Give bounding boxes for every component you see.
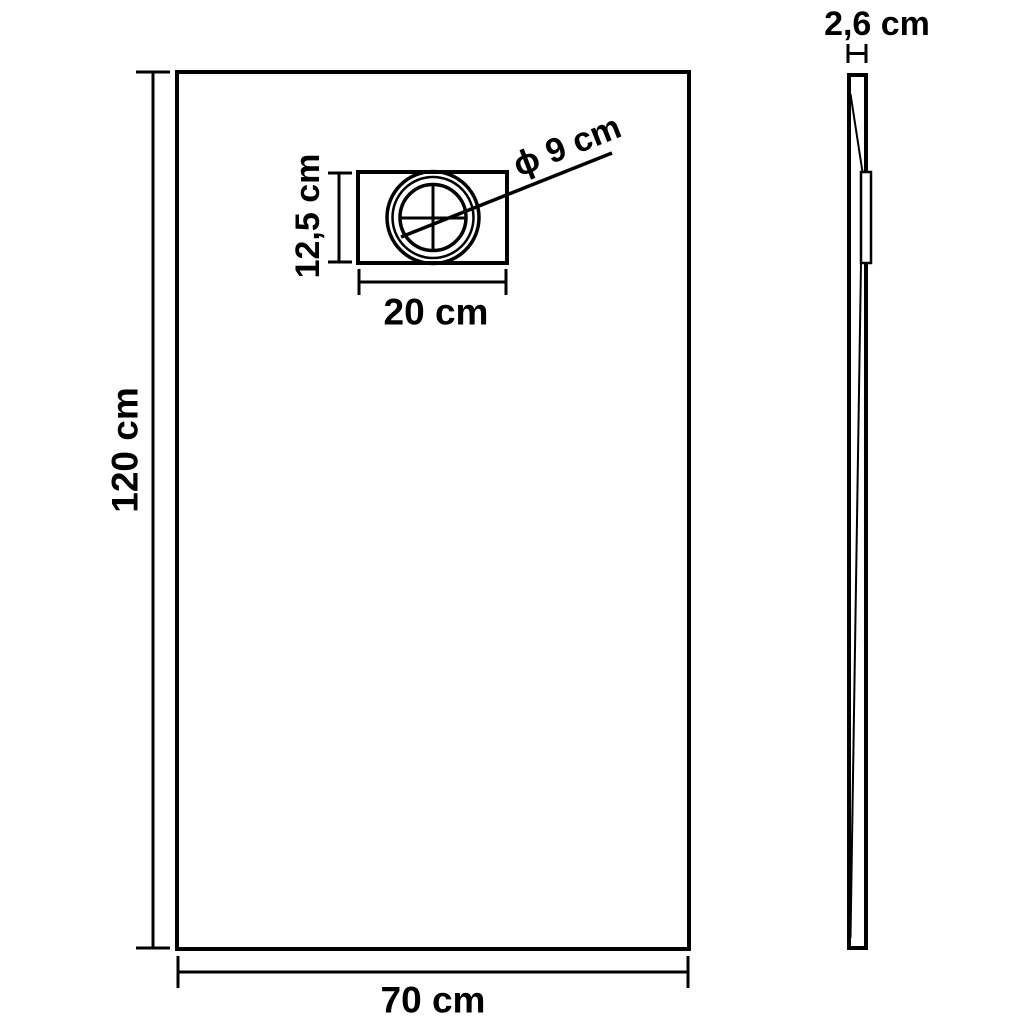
thickness-dimension-label: 2,6 cm	[824, 5, 930, 43]
drain-box-height-label: 12,5 cm	[289, 154, 327, 279]
shower-tray-dimension-diagram: 120 cm 70 cm	[0, 0, 1024, 1024]
dimension-diagram-page: 120 cm 70 cm	[0, 0, 1024, 1024]
front-view: 120 cm 70 cm	[105, 72, 690, 1021]
width-dimension-label: 70 cm	[381, 980, 486, 1021]
height-dimension-label: 120 cm	[105, 387, 146, 513]
drain-box-width-label: 20 cm	[384, 292, 489, 333]
side-view: 2,6 cm	[824, 5, 930, 948]
thickness-dimension-line	[848, 44, 866, 63]
side-drain-cover	[861, 172, 871, 263]
